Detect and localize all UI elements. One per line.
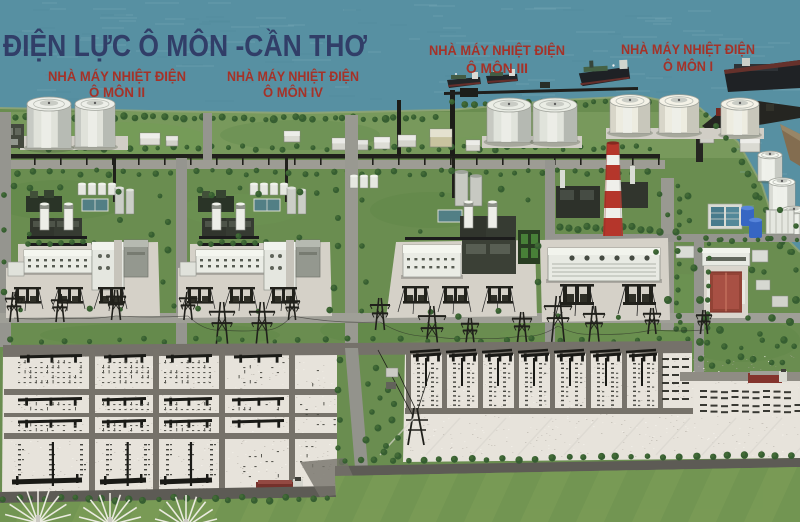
- svg-text:ĐIỆN LỰC Ô MÔN -CẦN THƠ: ĐIỆN LỰC Ô MÔN -CẦN THƠ: [3, 27, 367, 63]
- svg-text:NHÀ MÁY NHIỆT ĐIỆN: NHÀ MÁY NHIỆT ĐIỆN: [429, 43, 565, 58]
- svg-text:NHÀ MÁY NHIỆT ĐIỆN: NHÀ MÁY NHIỆT ĐIỆN: [621, 42, 755, 57]
- svg-text:NHÀ MÁY NHIỆT ĐIỆN: NHÀ MÁY NHIỆT ĐIỆN: [48, 69, 186, 84]
- svg-text:NHÀ MÁY NHIỆT ĐIỆN: NHÀ MÁY NHIỆT ĐIỆN: [227, 69, 359, 84]
- svg-text:Ô MÔN II: Ô MÔN II: [89, 85, 145, 100]
- svg-text:Ô MÔN I: Ô MÔN I: [663, 59, 713, 74]
- svg-text:Ô MÔN III: Ô MÔN III: [466, 61, 528, 76]
- svg-text:Ô MÔN IV: Ô MÔN IV: [263, 85, 323, 100]
